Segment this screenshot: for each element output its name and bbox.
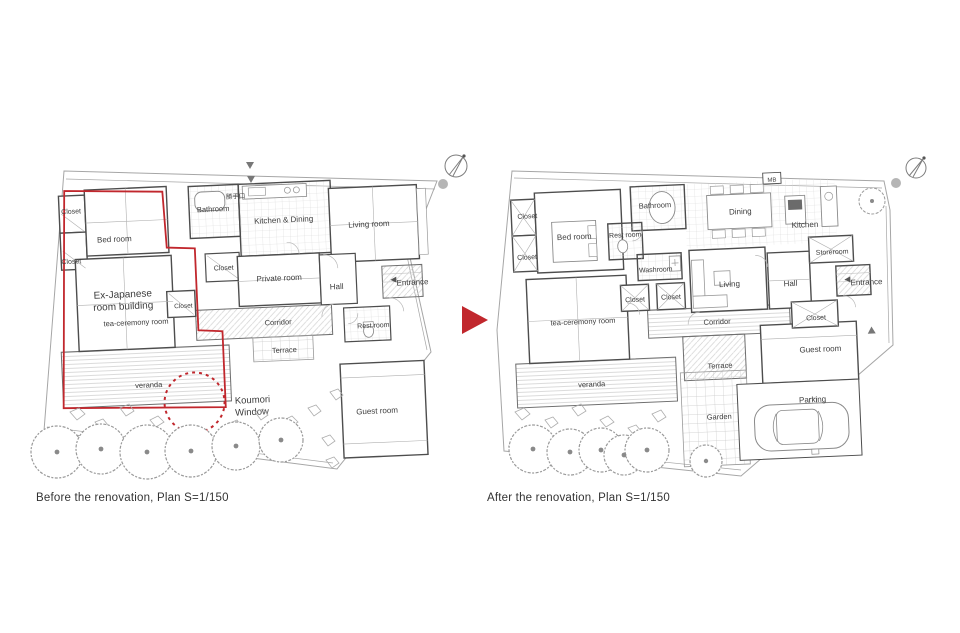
- room-label-closet: Closet: [661, 294, 681, 302]
- room-label-guest: Guest room: [356, 406, 398, 417]
- after-plan: Closet Bed room Closet Bathroom Rest roo…: [497, 156, 926, 477]
- room-label-guest: Guest room: [799, 344, 841, 355]
- room-label-hall: Hall: [330, 282, 344, 292]
- veranda-deck: [61, 345, 231, 408]
- room-label-living: Living room: [348, 219, 390, 230]
- room-label-closet: Closet: [214, 265, 234, 273]
- sofa-icon: [691, 260, 705, 296]
- room-label-entrance: Entrance: [850, 277, 883, 287]
- room-label-closet: Closet: [517, 213, 537, 221]
- annotation-koumori-line2: Window: [235, 406, 269, 418]
- renovation-comparison-page: Closet Bed room Closet Bathroom 勝手口 Kitc…: [0, 0, 960, 633]
- room-label-living: Living: [719, 279, 740, 289]
- room-hall: [319, 253, 357, 305]
- room-label-terrace: Terrace: [272, 345, 297, 355]
- north-marker-icon: [246, 162, 254, 169]
- north-marker-icon: [247, 176, 255, 183]
- room-label-terrace: Terrace: [707, 361, 732, 371]
- room-label-rest: Rest room: [357, 322, 390, 330]
- room-label-parking: Parking: [799, 395, 826, 405]
- room-label-bathroom: Bathroom: [639, 200, 672, 210]
- utility-dot-icon: [891, 178, 901, 188]
- room-label-storeroom: Storeroom: [816, 248, 849, 256]
- room-label-kitchen: Kitchen: [791, 220, 818, 230]
- annotation-koumori-line1: Koumori: [235, 394, 271, 407]
- compass-icon: [445, 154, 467, 177]
- room-label-garden: Garden: [707, 412, 732, 422]
- sofa-icon: [693, 295, 727, 308]
- room-label-entrance: Entrance: [396, 277, 429, 287]
- floor-plans-drawing: Closet Bed room Closet Bathroom 勝手口 Kitc…: [0, 0, 960, 633]
- room-label-bathroom: Bathroom: [197, 204, 230, 214]
- tree-center-dot: [870, 199, 874, 203]
- toilet-icon: [617, 240, 628, 253]
- compass-icon: [906, 156, 926, 178]
- after-building: Closet Bed room Closet Bathroom Rest roo…: [508, 168, 891, 474]
- before-after-arrow-icon: [462, 306, 488, 334]
- room-label-closet: Closet: [61, 208, 81, 216]
- after-caption: After the renovation, Plan S=1/150: [487, 492, 670, 504]
- marker-icon: [867, 326, 875, 333]
- room-label-corridor: Corridor: [703, 317, 731, 327]
- kitchen-counter-icon: [242, 183, 307, 199]
- room-label-closet: Closet: [517, 254, 537, 262]
- room-label-dining: Dining: [729, 207, 752, 217]
- pillow-icon: [589, 243, 598, 256]
- room-label-mb: MB: [767, 178, 776, 184]
- room-label-closet: Closet: [174, 302, 193, 310]
- before-plan: Closet Bed room Closet Bathroom 勝手口 Kitc…: [31, 154, 467, 479]
- room-label-closet: Closet: [61, 258, 81, 266]
- garden-trees: [31, 418, 303, 479]
- room-label-bedroom: Bed room: [557, 232, 592, 243]
- utility-dot-icon: [438, 179, 448, 189]
- car-icon: [754, 397, 850, 457]
- stove-top-icon: [788, 199, 802, 210]
- room-label-rest: Rest room: [609, 231, 642, 239]
- room-label-veranda: veranda: [578, 379, 606, 389]
- room-label-corridor: Corridor: [264, 317, 292, 327]
- before-caption: Before the renovation, Plan S=1/150: [36, 492, 229, 504]
- room-label-closet: Closet: [625, 296, 645, 304]
- room-label-closet: Closet: [806, 315, 826, 323]
- room-label-bedroom: Bed room: [97, 234, 132, 245]
- room-label-hall: Hall: [783, 279, 797, 289]
- room-label-veranda: veranda: [135, 380, 163, 390]
- room-label-washroom: Washroom: [639, 266, 673, 274]
